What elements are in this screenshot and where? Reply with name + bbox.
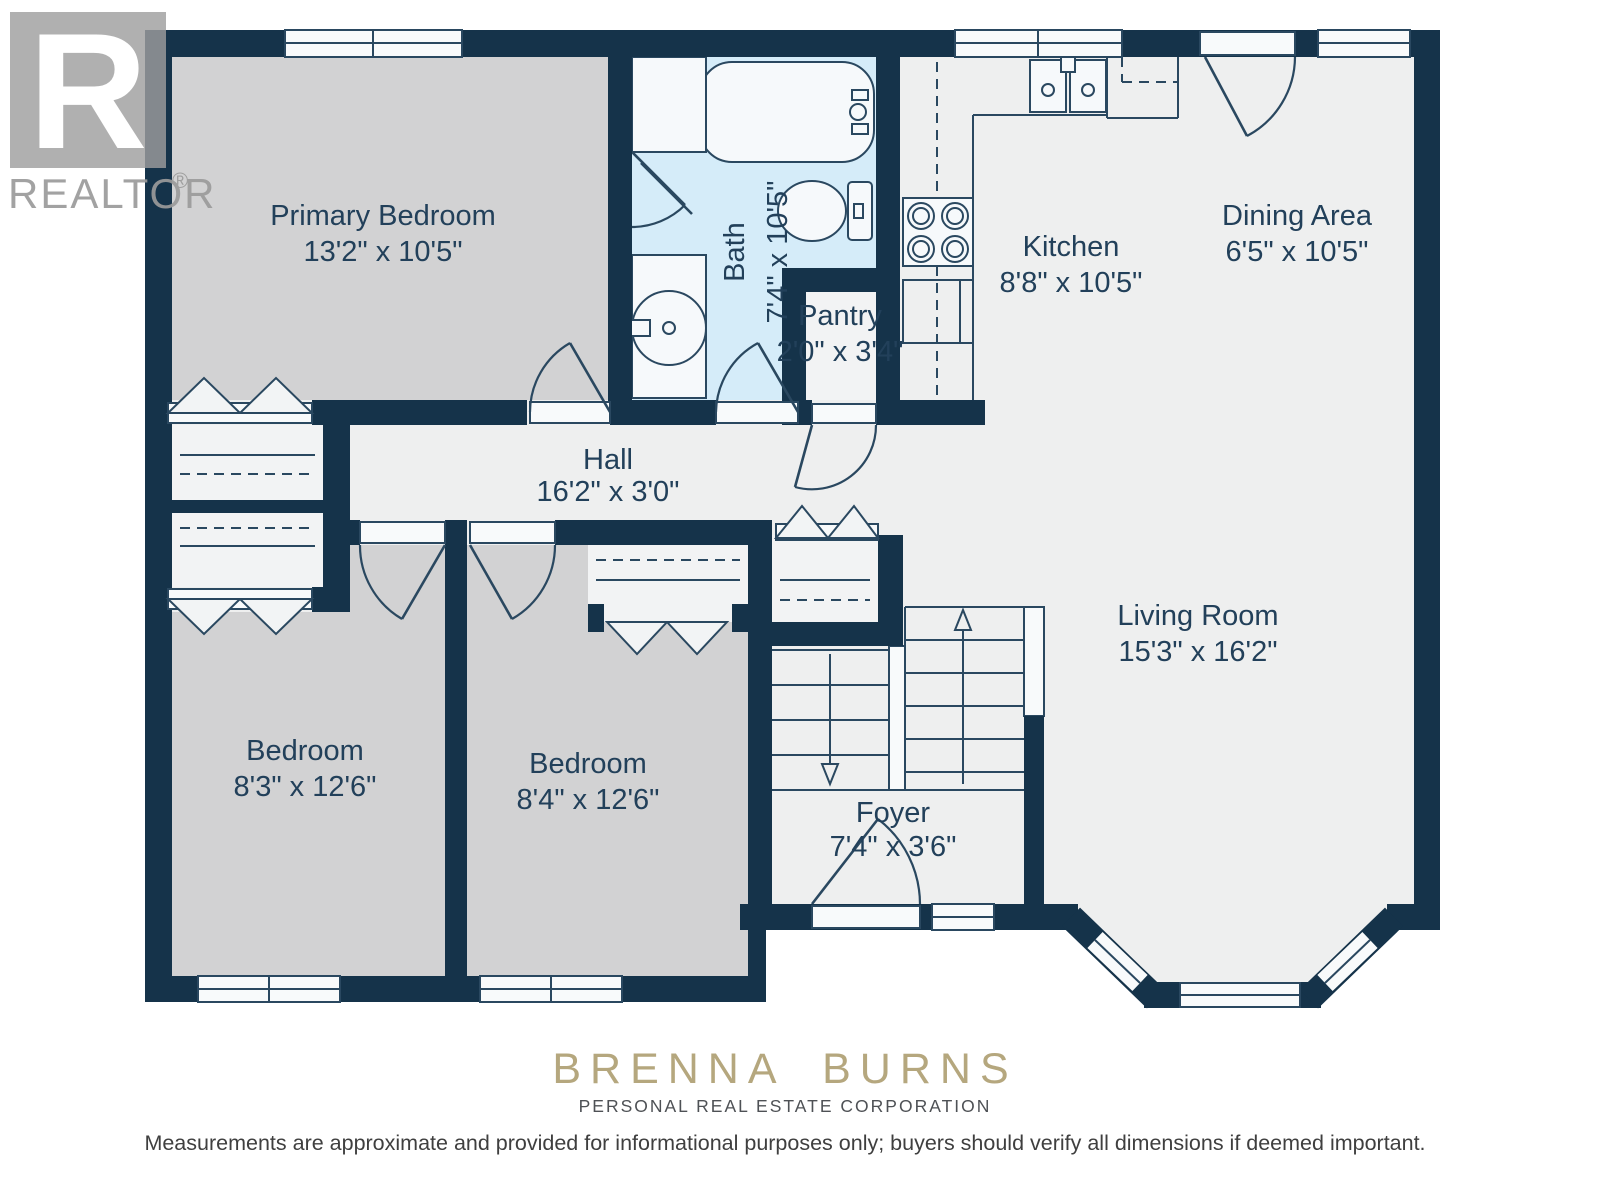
dims-living-room: 15'3" x 16'2" [1118, 636, 1277, 668]
label-primary-bedroom: Primary Bedroom [270, 200, 496, 232]
tub-handle-icon [852, 124, 868, 134]
label-hall: Hall [583, 444, 633, 476]
closet1-floor [172, 425, 323, 500]
dims-kitchen: 8'8" x 10'5" [1000, 267, 1143, 299]
closet2-floor [172, 513, 323, 587]
label-living-room: Living Room [1117, 600, 1278, 632]
window-bay-bottom [1180, 983, 1300, 1007]
window-bedroom1 [198, 976, 340, 1002]
registered-mark: ® [172, 168, 188, 193]
dims-pantry: 2'0" x 3'4" [777, 336, 904, 368]
threshold [1200, 32, 1295, 55]
dims-dining-area: 6'5" x 10'5" [1226, 236, 1369, 268]
sink-drain-icon [663, 322, 675, 334]
dims-bath: 7'4" x 10'5" [762, 181, 794, 324]
threshold [716, 402, 798, 423]
dims-bedroom1: 8'3" x 12'6" [234, 771, 377, 803]
dims-hall: 16'2" x 3'0" [537, 476, 680, 508]
disclaimer-text: Measurements are approximate and provide… [144, 1131, 1425, 1155]
floor-plan-page: Primary Bedroom 13'2" x 10'5" Bath 7'4" … [0, 0, 1600, 1200]
bedroom2-closet-floor [588, 545, 748, 622]
label-bedroom2: Bedroom [529, 748, 647, 780]
wall-pantry-top [782, 268, 900, 292]
stair-divider-wall [889, 646, 905, 790]
wall-bedroom-divider [445, 545, 467, 976]
sink-drain-icon [1082, 84, 1094, 96]
threshold [812, 906, 920, 928]
agent-name: BRENNA BURNS [552, 1045, 1017, 1093]
hall-closet-floor [772, 535, 878, 622]
wall-step [748, 930, 766, 1002]
window-dining [1318, 30, 1410, 57]
window-foyer [932, 904, 994, 930]
bathtub [700, 62, 874, 162]
threshold [360, 522, 445, 543]
dims-primary-bedroom: 13'2" x 10'5" [303, 236, 462, 268]
window-kitchen [955, 30, 1122, 57]
window-bedroom2 [480, 976, 622, 1002]
label-dining-area: Dining Area [1222, 200, 1373, 232]
tub-faucet-icon [850, 104, 866, 120]
wall-right [1414, 30, 1440, 930]
agent-subtitle: PERSONAL REAL ESTATE CORPORATION [579, 1096, 992, 1116]
wall-bedroom-bath [608, 57, 632, 412]
wall-foyer-living [1024, 716, 1044, 930]
wall-bedroom2-right [748, 520, 772, 930]
wall-closet-divider [172, 500, 323, 513]
realtor-r-icon: R [28, 0, 147, 183]
stair-rail-wall [1024, 607, 1044, 716]
wall-hall-bottom [555, 520, 748, 545]
wall-closets-right [323, 400, 350, 612]
floor-plan-canvas: Primary Bedroom 13'2" x 10'5" Bath 7'4" … [0, 0, 1600, 1200]
label-bath: Bath [719, 222, 751, 282]
label-bedroom1: Bedroom [246, 735, 364, 767]
tub-handle-icon [852, 90, 868, 100]
branding-block: BRENNA BURNS PERSONAL REAL ESTATE CORPOR… [144, 1045, 1425, 1155]
stove [903, 198, 973, 266]
dims-foyer: 7'4" x 3'6" [830, 831, 957, 863]
label-foyer: Foyer [856, 797, 930, 829]
toilet-flush-icon [854, 204, 863, 218]
label-kitchen: Kitchen [1023, 231, 1120, 263]
threshold [530, 402, 610, 423]
label-pantry: Pantry [798, 300, 882, 332]
dims-bedroom2: 8'4" x 12'6" [517, 784, 660, 816]
wall-hallcloset-right [878, 535, 903, 646]
sink-drain-icon [1042, 84, 1054, 96]
window-primary-bedroom [285, 30, 462, 57]
threshold [812, 404, 876, 423]
threshold [470, 522, 555, 543]
linen-closet [632, 57, 706, 152]
